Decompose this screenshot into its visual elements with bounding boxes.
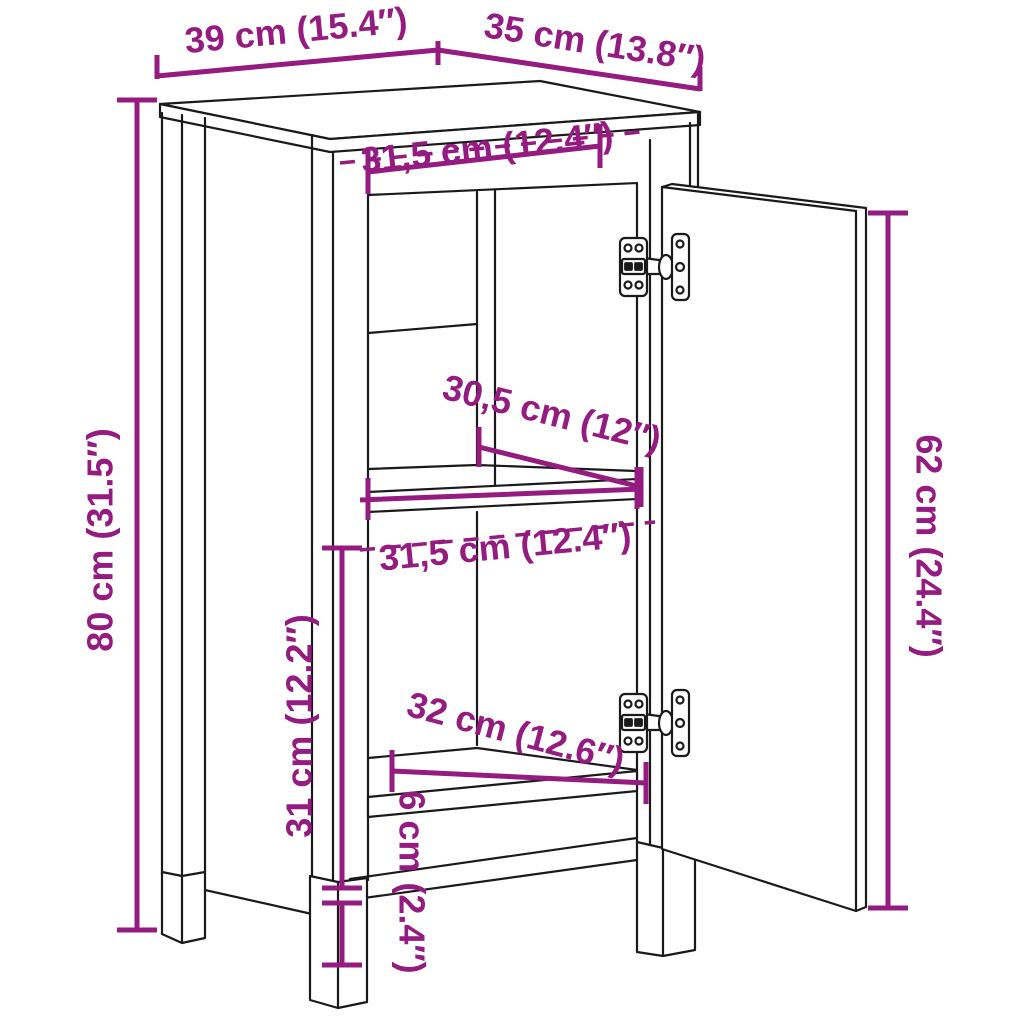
dim-label-plinth-height: 6 cm (2.4″) <box>392 790 433 973</box>
dim-door-height: 62 cm (24.4″) <box>868 213 950 908</box>
hinge-slot <box>625 719 632 726</box>
dim-label-depth-top: 35 cm (13.8″) <box>481 4 708 79</box>
dim-label-inner-height-lower: 31 cm (12.2″) <box>279 614 320 837</box>
dim-line <box>117 100 157 930</box>
dim-line <box>868 213 908 908</box>
dim-label-door-height: 62 cm (24.4″) <box>909 434 950 657</box>
dim-line <box>322 548 362 888</box>
door-hinge-bottom <box>620 690 689 756</box>
hinge-door-plate <box>672 690 689 756</box>
cabinet-diagram-svg: 39 cm (15.4″) 35 cm (13.8″) 31,5 cm (12.… <box>0 0 1024 1024</box>
dim-inner-height-lower: 31 cm (12.2″) <box>279 548 363 888</box>
hinge-door-plate <box>672 234 689 300</box>
hinge-slot <box>635 263 642 270</box>
back-left-leg <box>162 872 205 943</box>
front-left-leg <box>310 876 367 1008</box>
dim-label-inner-width-middle: 31,5 cm (12.4″) <box>377 513 633 578</box>
front-right-leg <box>637 842 695 956</box>
dim-label-width-top: 39 cm (15.4″) <box>183 0 409 61</box>
furniture-dimension-diagram: 39 cm (15.4″) 35 cm (13.8″) 31,5 cm (12.… <box>0 0 1024 1024</box>
dim-label-shelf-depth: 30,5 cm (12″) <box>439 366 666 460</box>
dim-label-inner-width-lower: 32 cm (12.6″) <box>403 683 629 780</box>
dim-height-left: 80 cm (31.5″) <box>80 100 158 930</box>
dim-width-top: 39 cm (15.4″) <box>157 0 438 79</box>
dim-label-height-left: 80 cm (31.5″) <box>80 428 121 651</box>
hinge-slot <box>635 719 642 726</box>
hinge-slot <box>625 263 632 270</box>
cabinet-door <box>662 184 866 911</box>
door-hinge-top <box>620 234 689 300</box>
dim-depth-top: 35 cm (13.8″) <box>438 4 709 91</box>
